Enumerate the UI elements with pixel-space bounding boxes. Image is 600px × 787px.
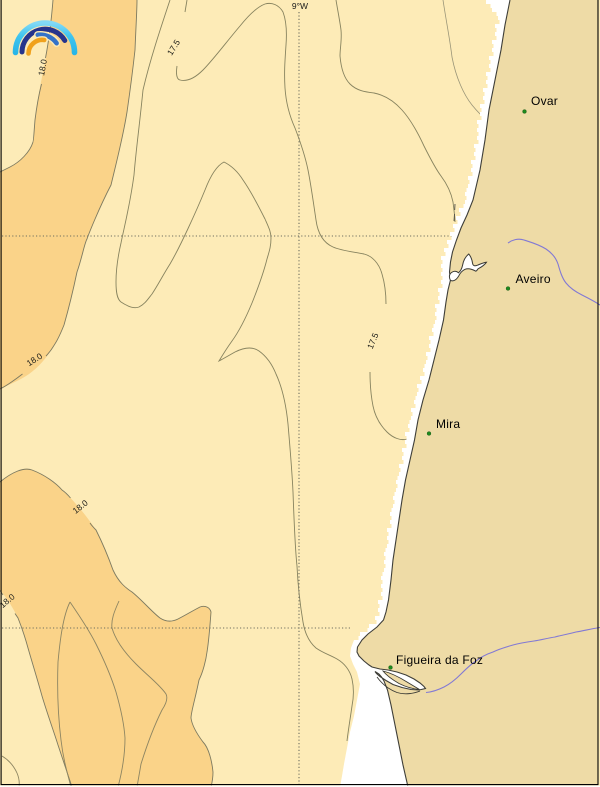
svg-text:9°W: 9°W [292,1,308,11]
svg-text:Ovar: Ovar [531,94,558,108]
svg-text:Figueira da Foz: Figueira da Foz [396,653,483,667]
svg-text:Aveiro: Aveiro [516,272,551,286]
svg-text:Mira: Mira [436,417,460,431]
